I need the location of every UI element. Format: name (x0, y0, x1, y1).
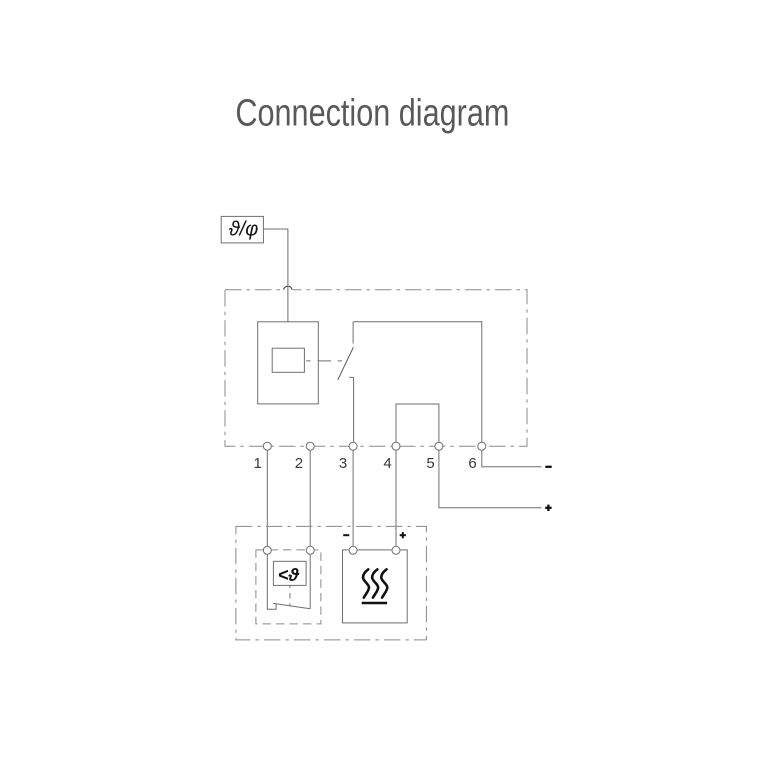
svg-text:<ϑ: <ϑ (278, 565, 300, 585)
svg-text:4: 4 (383, 455, 391, 472)
svg-text:Connection diagram: Connection diagram (235, 92, 509, 134)
svg-text:1: 1 (254, 455, 262, 472)
svg-text:ϑ/φ: ϑ/φ (229, 219, 259, 241)
svg-text:2: 2 (295, 455, 303, 472)
svg-text:5: 5 (426, 455, 434, 472)
svg-text:3: 3 (339, 455, 347, 472)
svg-text:6: 6 (468, 455, 476, 472)
